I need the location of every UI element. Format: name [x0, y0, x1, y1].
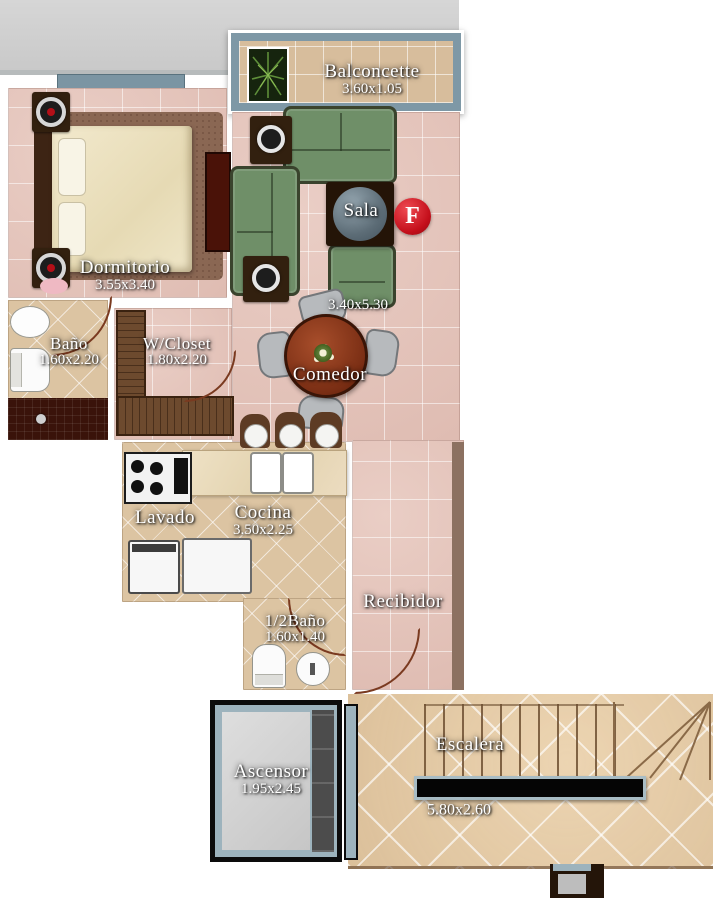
label-wcloset: W/Closet 1.80x2.20: [143, 335, 211, 369]
bar-stool: [240, 414, 270, 448]
end-table: [243, 256, 289, 302]
shower: [8, 398, 108, 440]
bedroom-dresser: [205, 152, 231, 252]
label-halfbano: 1/2Baño 1.60x1.40: [264, 612, 325, 646]
label-ascensor: Ascensor 1.95x2.45: [234, 762, 309, 798]
floor-plan: F: [0, 0, 713, 900]
foyer-wall-strip: [452, 442, 464, 690]
elevator-door: [312, 710, 334, 852]
elevator-rail: [344, 704, 358, 860]
kitchen-sink: [250, 452, 282, 494]
nightstand: [32, 92, 70, 132]
label-sala-dims: 3.40x5.30: [328, 298, 388, 314]
shower-drain-icon: [36, 414, 46, 424]
table-centerpiece: [314, 344, 332, 362]
laundry-unit: [182, 538, 252, 594]
stair-railing: [414, 776, 646, 800]
label-bano: Baño 1.60x2.20: [39, 335, 99, 369]
label-balconcette: Balconcette 3.60x1.05: [324, 62, 419, 98]
label-sala: Sala: [344, 201, 379, 221]
stove: [124, 452, 192, 504]
bed-pillow: [58, 138, 86, 196]
stair-winders: [610, 698, 713, 784]
washer: [128, 540, 180, 594]
label-dormitorio: Dormitorio 3.55x3.40: [80, 258, 171, 294]
label-recibidor: Recibidor: [363, 592, 442, 612]
bar-stool: [310, 412, 342, 448]
label-escalera: Escalera: [436, 735, 504, 755]
bedroom-round-rug: [40, 278, 68, 294]
plant-icon: [247, 47, 289, 103]
end-table: [250, 116, 292, 164]
bar-stool: [275, 412, 305, 448]
kitchen-sink: [282, 452, 314, 494]
label-escalera-dims: 5.80x2.60: [427, 803, 491, 820]
label-comedor: Comedor: [293, 365, 367, 385]
bathroom-sink: [10, 306, 50, 338]
label-lavado: Lavado: [135, 508, 195, 528]
label-cocina: Cocina 3.50x2.25: [233, 503, 293, 539]
unit-marker-badge: F: [394, 198, 431, 235]
halfbath-toilet: [252, 644, 286, 688]
sofa-loveseat: [283, 106, 397, 184]
halfbath-sink: [296, 652, 330, 686]
closet-unit-horizontal: [116, 396, 234, 436]
service-box: [550, 864, 604, 898]
